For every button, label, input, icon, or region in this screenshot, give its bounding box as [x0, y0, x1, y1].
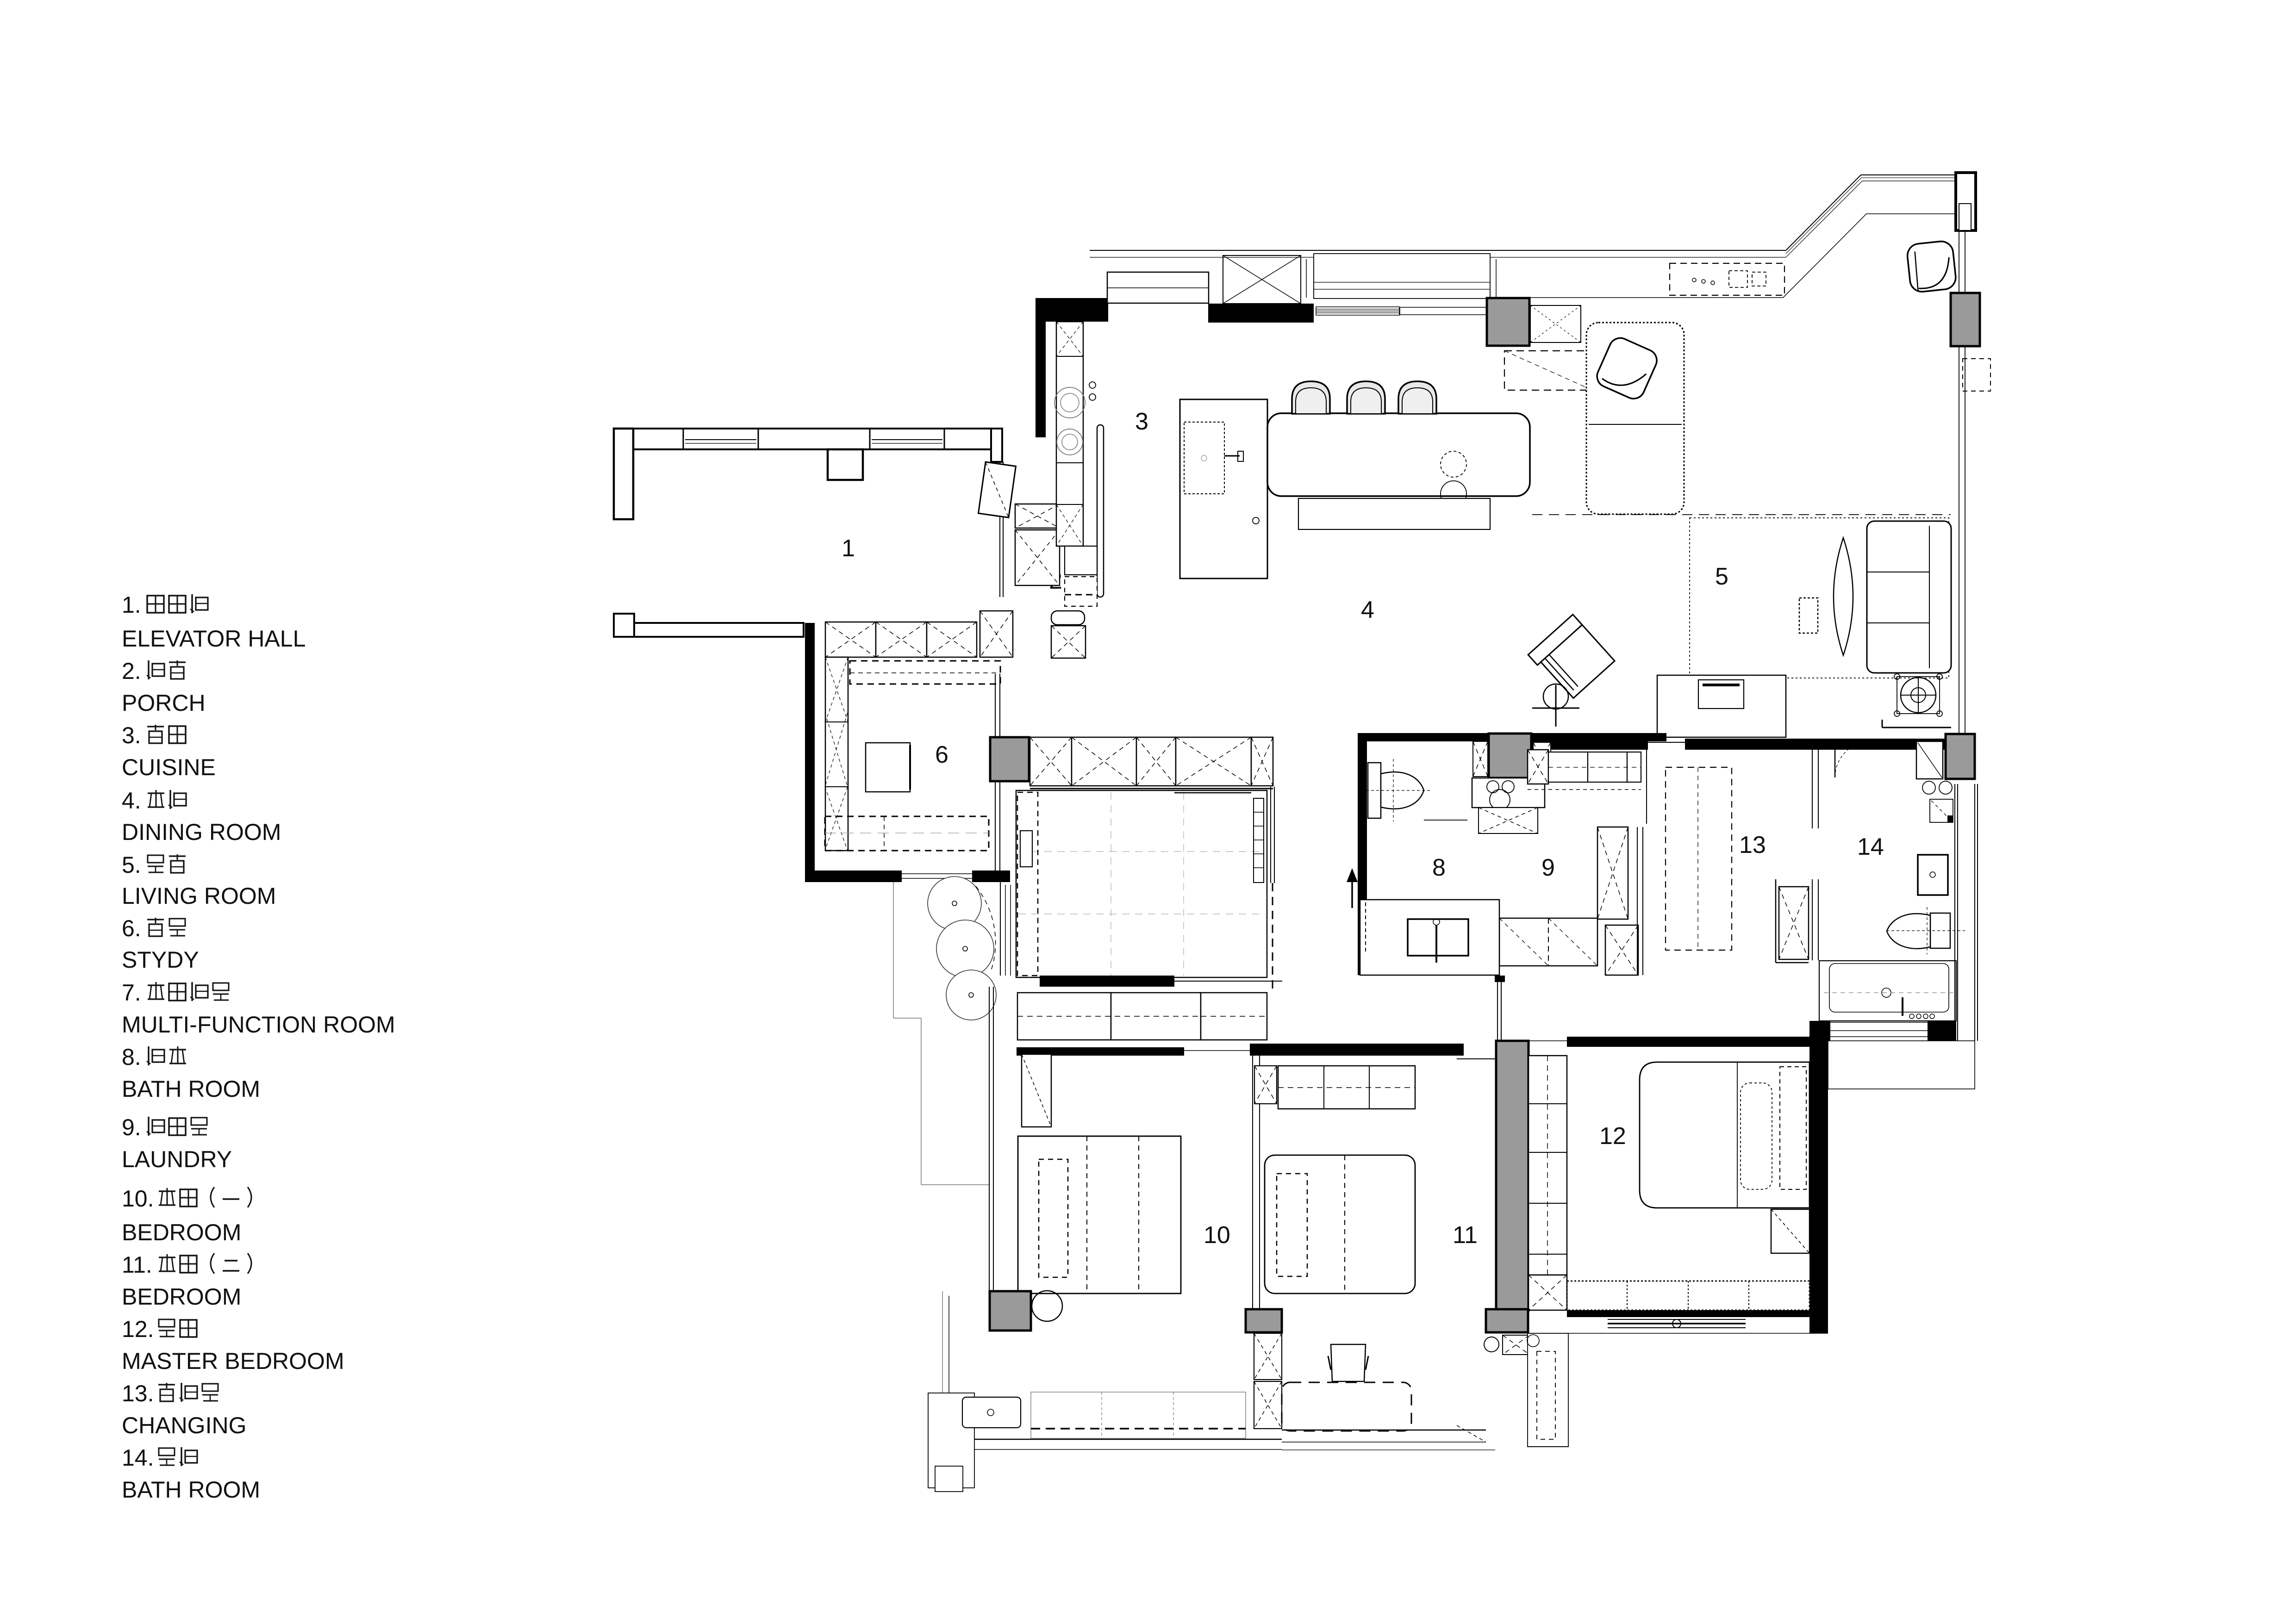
svg-text:13: 13: [1739, 832, 1766, 858]
svg-text:BEDROOM: BEDROOM: [122, 1219, 241, 1245]
svg-text:5.: 5.: [122, 852, 141, 878]
svg-text:3: 3: [1135, 408, 1148, 435]
svg-text:LAUNDRY: LAUNDRY: [122, 1146, 232, 1172]
svg-text:5: 5: [1715, 563, 1728, 590]
svg-text:10.: 10.: [122, 1186, 154, 1212]
svg-text:13.: 13.: [122, 1380, 154, 1406]
svg-text:BATH ROOM: BATH ROOM: [122, 1076, 260, 1102]
svg-text:3.: 3.: [122, 722, 141, 748]
svg-text:8: 8: [1432, 854, 1446, 881]
svg-text:4.: 4.: [122, 788, 141, 814]
svg-text:9.: 9.: [122, 1114, 141, 1140]
svg-text:PORCH: PORCH: [122, 690, 206, 716]
svg-text:BATH ROOM: BATH ROOM: [122, 1477, 260, 1503]
svg-text:9: 9: [1541, 854, 1555, 881]
svg-text:ELEVATOR HALL: ELEVATOR HALL: [122, 626, 306, 652]
svg-text:6: 6: [935, 741, 948, 768]
svg-text:4: 4: [1361, 597, 1374, 623]
svg-text:MULTI-FUNCTION ROOM: MULTI-FUNCTION ROOM: [122, 1012, 395, 1038]
svg-text:11.: 11.: [122, 1252, 152, 1278]
svg-text:10: 10: [1204, 1222, 1230, 1249]
svg-text:14: 14: [1857, 833, 1884, 860]
svg-text:14.: 14.: [122, 1445, 154, 1471]
svg-text:BEDROOM: BEDROOM: [122, 1284, 241, 1310]
svg-text:CUISINE: CUISINE: [122, 754, 216, 780]
svg-text:1: 1: [842, 535, 855, 562]
svg-text:1.: 1.: [122, 592, 141, 618]
svg-text:DINING ROOM: DINING ROOM: [122, 819, 281, 845]
svg-text:MASTER BEDROOM: MASTER BEDROOM: [122, 1348, 344, 1374]
svg-text:LIVING ROOM: LIVING ROOM: [122, 883, 276, 909]
svg-text:2.: 2.: [122, 658, 141, 684]
svg-text:8.: 8.: [122, 1044, 141, 1070]
svg-text:11: 11: [1453, 1222, 1478, 1249]
svg-text:6.: 6.: [122, 915, 141, 941]
svg-text:CHANGING: CHANGING: [122, 1412, 246, 1438]
svg-text:STYDY: STYDY: [122, 947, 199, 973]
svg-text:7.: 7.: [122, 980, 141, 1006]
svg-text:12: 12: [1599, 1123, 1626, 1150]
svg-text:12.: 12.: [122, 1316, 154, 1342]
